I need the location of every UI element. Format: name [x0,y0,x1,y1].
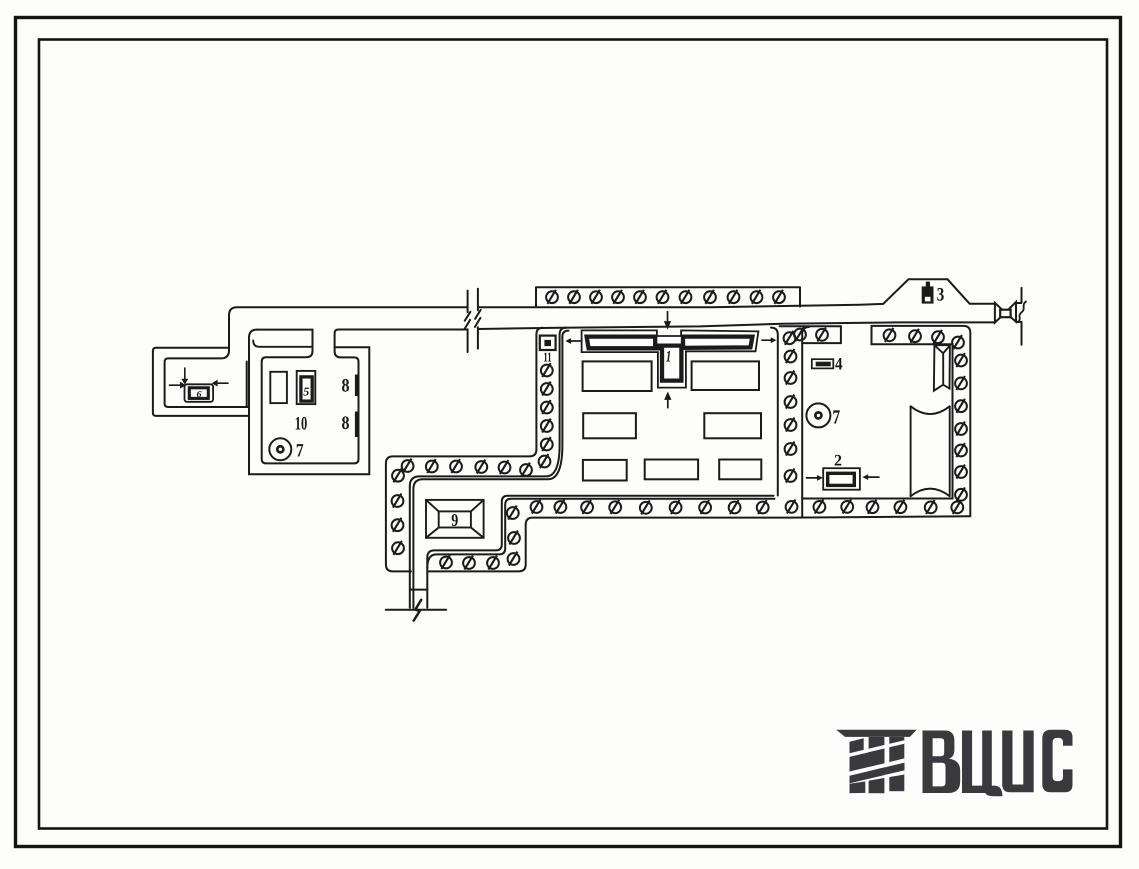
svg-text:4: 4 [835,354,843,374]
svg-text:5: 5 [303,385,309,399]
svg-text:7: 7 [296,441,304,462]
svg-text:9: 9 [451,510,458,530]
svg-text:1: 1 [666,349,672,366]
svg-text:10: 10 [295,414,308,435]
svg-text:8: 8 [342,376,350,397]
svg-text:8: 8 [342,413,350,434]
svg-text:11: 11 [543,350,551,365]
svg-text:7: 7 [832,407,840,429]
svg-text:3: 3 [937,285,945,306]
svg-text:2: 2 [834,453,842,470]
svg-text:6: 6 [197,389,203,399]
